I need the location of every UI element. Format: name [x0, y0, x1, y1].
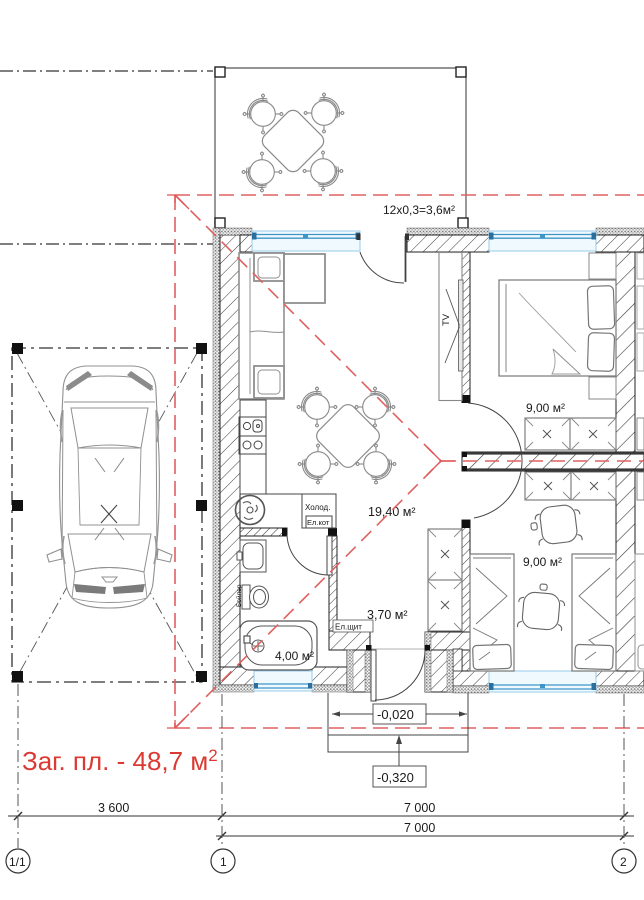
svg-text:1: 1 [220, 855, 227, 869]
svg-text:4,00 м²: 4,00 м² [275, 649, 314, 663]
svg-text:9,00 м²: 9,00 м² [523, 555, 562, 569]
svg-text:Ел.кот: Ел.кот [307, 518, 330, 527]
svg-text:-0,020: -0,020 [377, 707, 414, 722]
svg-text:Заг. пл. - 48,7 м2: Заг. пл. - 48,7 м2 [22, 746, 218, 776]
svg-text:7 000: 7 000 [404, 801, 435, 815]
svg-text:TV: TV [441, 313, 452, 326]
svg-text:19,40 м²: 19,40 м² [368, 505, 416, 519]
svg-text:Холод.: Холод. [305, 503, 330, 512]
svg-text:3,70 м²: 3,70 м² [367, 608, 408, 622]
svg-text:2: 2 [620, 855, 627, 869]
svg-text:Ел.щит: Ел.щит [335, 623, 362, 632]
svg-text:9,00 м²: 9,00 м² [526, 401, 565, 415]
svg-text:3 600: 3 600 [98, 801, 129, 815]
svg-text:1/1: 1/1 [9, 855, 26, 869]
svg-text:7 000: 7 000 [404, 821, 435, 835]
svg-text:12x0,3=3,6м²: 12x0,3=3,6м² [383, 203, 455, 217]
svg-text:-0,320: -0,320 [377, 770, 414, 785]
